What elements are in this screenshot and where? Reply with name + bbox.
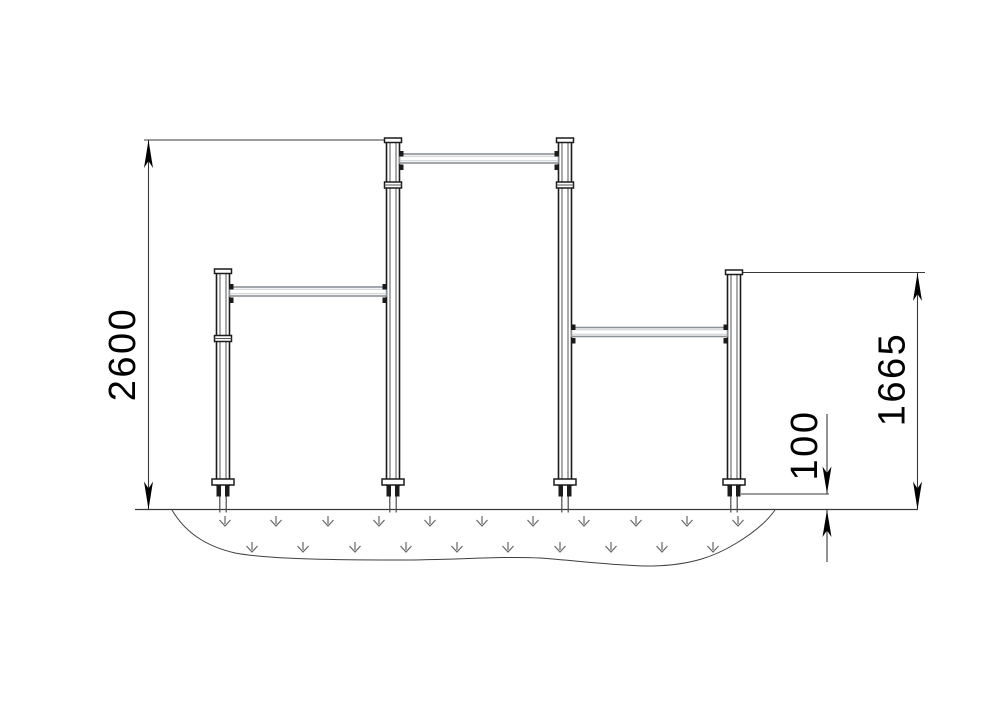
bar-tube	[572, 328, 728, 337]
post-cap	[557, 138, 574, 143]
base-sleeve	[225, 485, 230, 497]
surfacing-arrows-row2	[247, 542, 719, 552]
bar-tube	[400, 154, 559, 163]
clamp-bolt	[383, 298, 388, 304]
elevation-drawing: 2600 1665 100	[0, 0, 1000, 707]
base-sleeve	[559, 485, 564, 497]
base-flange	[382, 479, 404, 485]
dimension-label-100: 100	[784, 410, 826, 481]
dimension-1665: 1665	[741, 273, 925, 510]
clamp-bolt	[724, 338, 729, 344]
base-sleeve	[217, 485, 222, 497]
drawing-sheet: 2600 1665 100	[0, 0, 1000, 707]
base-sleeve	[387, 485, 392, 497]
clamp-bolt	[229, 298, 234, 304]
post-right-medium	[723, 270, 745, 513]
clamp-bolt	[229, 284, 234, 290]
base-flange	[554, 479, 576, 485]
surfacing-arrows-row1	[220, 516, 744, 526]
clamp-bolt	[555, 165, 560, 171]
dimension-100: 100	[741, 410, 832, 562]
base-sleeve	[736, 485, 741, 497]
bar-tube	[230, 287, 387, 296]
bar-top	[399, 151, 559, 170]
clamp-bolt	[555, 151, 560, 157]
bar-right	[571, 325, 728, 344]
dimension-label-2600: 2600	[102, 307, 144, 402]
base-sleeve	[728, 485, 733, 497]
clamp-bolt	[383, 284, 388, 290]
post-cap	[726, 270, 743, 275]
post-cap	[215, 269, 232, 274]
clamp-bolt	[399, 151, 404, 157]
clamp-bolt	[399, 165, 404, 171]
post-cap	[385, 138, 402, 143]
post-left-tall	[382, 138, 404, 513]
clamp-bolt	[724, 325, 729, 331]
dimension-2600: 2600	[102, 140, 387, 510]
base-flange	[212, 479, 234, 485]
clamp-bolt	[571, 338, 576, 344]
clamp-bolt	[571, 325, 576, 331]
bar-left	[229, 284, 387, 303]
ground	[135, 510, 918, 567]
dimension-label-1665: 1665	[872, 332, 914, 427]
base-flange	[723, 479, 745, 485]
base-sleeve	[395, 485, 400, 497]
surfacing-outline	[172, 510, 775, 566]
post-left-short	[212, 269, 234, 513]
base-sleeve	[567, 485, 572, 497]
